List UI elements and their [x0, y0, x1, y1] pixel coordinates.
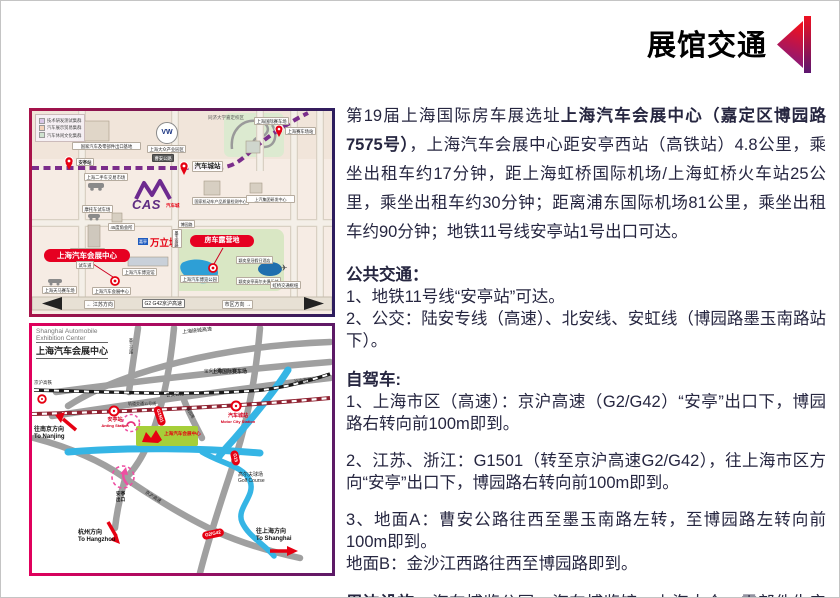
public-transport-section: 公共交通： 1、地铁11号线“安亭站”可达。 2、公交：陆安专线（高速）、北安线…: [346, 264, 826, 352]
left-arrow-glyph: ←: [87, 302, 92, 308]
right-arrow-glyph: →: [246, 302, 251, 308]
label-tongji: 同济大学嘉定校区: [208, 115, 244, 121]
driving-item: 3、地面A：曹安公路往西至墨玉南路左转，至博园路左转向前100m即到。: [346, 509, 826, 553]
cas-logo-subtext: 汽车城: [166, 203, 180, 209]
public-transport-item: 1、地铁11号线“安亭站”可达。: [346, 286, 826, 308]
transport-info: 第19届上海国际房车展选址上海汽车会展中心（嘉定区博园路7575号），上海汽车会…: [346, 102, 826, 598]
airplane-icon: ✈: [280, 263, 288, 274]
label-hongqiao-hub: 虹桥交通枢纽: [270, 281, 301, 289]
label-to-nanjing: 往南京方向To Nanjing: [34, 427, 65, 441]
vw-logo: VW: [156, 122, 178, 144]
driving-section: 自驾车: 1、上海市区（高速）：京沪高速（G2/G42）“安亭”出口下，博园路右…: [346, 369, 826, 575]
label-to-shanghai: 往上海方向To Shanghai: [256, 529, 292, 543]
label-vw-park: 上海大众产业园区: [147, 145, 186, 153]
arrow-bar: [804, 16, 811, 73]
label-to-hangzhou: 杭州方向To Hangzhou: [78, 530, 116, 544]
legend-swatch: [39, 118, 45, 124]
map-title-cn: 上海汽车会展中心: [36, 342, 108, 359]
label-intl-circuit: 上海国际赛车场: [212, 368, 247, 375]
legend-item: 汽车展示贸易集群: [39, 124, 81, 131]
intro-pre: 第19届上海国际房车展选址: [346, 107, 561, 125]
driving-item: 地面B：金沙江西路往西至博园路即到。: [346, 553, 826, 575]
public-transport-heading: 公共交通：: [346, 264, 826, 286]
map-anting-canvas: 技术研发测试集群 汽车展示贸易集群 汽车休闲文化集群 国家汽车及零部件出口基地 …: [32, 111, 332, 314]
label-dir-city: 市区方向 →: [222, 300, 253, 309]
label-expo-center: 上海汽车会展中心: [164, 431, 201, 437]
driving-item: 1、上海市区（高速）：京沪高速（G2/G42）“安亭”出口下，博园路右转向前10…: [346, 391, 826, 435]
label-expo-center-small: 上海汽车会展中心: [92, 287, 131, 295]
label-f1: 上海国际赛车场: [254, 117, 289, 125]
label-golf-course: 高尔夫球场Golf Course: [238, 472, 265, 484]
legend-item: 技术研发测试集群: [39, 117, 81, 124]
label-expo-park: 上海汽车博览公园: [180, 275, 219, 283]
sign-g2-g42: G2 G42京沪高速: [142, 299, 185, 308]
legend-item: 汽车休闲文化集群: [39, 132, 81, 139]
facilities-heading: 周边设施：: [346, 594, 432, 598]
facilities-section: 周边设施：汽车博览公园、汽车博览馆、上海大众、零部件生产商、机动车检测中心、F1…: [346, 592, 826, 598]
label-club45: 45度角会所: [108, 223, 135, 231]
label-qc-center: 国家机动车产品质量检测中心: [192, 197, 249, 205]
title-arrow-icon: [777, 16, 811, 73]
page-title: 展馆交通: [647, 22, 767, 64]
legend-swatch: [39, 132, 45, 138]
station-label-anting: 安亭站Anting Station: [96, 418, 134, 428]
label-anting-exit: 安亭出口: [116, 491, 125, 502]
station-label-motor-city: 汽车城站Motor City Station: [216, 414, 260, 424]
label-tianma-circuit: 上海天马赛车场: [42, 286, 77, 294]
station-ring-motor-city: [232, 402, 241, 411]
map-legend: 技术研发测试集群 汽车展示贸易集群 汽车休闲文化集群: [35, 114, 85, 142]
station-label-circuit: 上海赛车场站: [285, 127, 316, 135]
label-metro11: 轨道交通11号线: [128, 401, 156, 407]
public-transport-item: 2、公交：陆安专线（高速）、北安线、安虹线（博园路墨玉南路站下）。: [346, 308, 826, 352]
intro-paragraph: 第19届上海国际房车展选址上海汽车会展中心（嘉定区博园路7575号），上海汽车会…: [346, 102, 826, 247]
label-export-base: 国家汽车及零部件出口基地: [72, 142, 141, 150]
label-boyuan-road: 博园路: [178, 220, 195, 228]
driving-heading: 自驾车:: [346, 369, 826, 391]
label-moyu-north-road: 墨玉北路: [128, 338, 134, 354]
label-saic-rd: 上汽集团研发中心: [246, 195, 295, 203]
driving-item: 2、江苏、浙江：G1501（转至京沪高速G2/G42），往上海市区方向“安亭”出…: [346, 450, 826, 494]
label-jinghu-hsr: 京沪高铁: [34, 380, 52, 386]
label-moto-track: 摩托车试车场: [82, 205, 113, 213]
map-highway-schematic: Shanghai Automobile Exhibition Center 上海…: [29, 323, 335, 576]
intro-post: ，上海汽车会展中心距安亭西站（高铁站）4.8公里，乘坐出租车约17分钟，距上海虹…: [346, 136, 826, 241]
station-label-motor-city: 汽车城站: [192, 161, 223, 172]
slide: 展馆交通: [0, 0, 840, 598]
station-ring-jinghu-hsr: [38, 395, 46, 403]
label-test-drive: 试车道: [76, 261, 94, 269]
arrow-triangle: [777, 21, 803, 68]
cas-logo-text: CAS: [132, 197, 161, 212]
label-dir-jiangsu: ← 江苏方向: [84, 300, 115, 309]
map-title-en2: Exhibition Center: [36, 335, 108, 342]
map-highway-canvas: Shanghai Automobile Exhibition Center 上海…: [32, 326, 332, 573]
label-moyu-road: 墨玉南路: [172, 229, 182, 248]
wanli-prefix: 嘉亭: [138, 238, 148, 245]
map-title-block: Shanghai Automobile Exhibition Center 上海…: [36, 328, 108, 359]
label-expo-museum: 上海汽车博览馆: [122, 268, 157, 276]
map-anting-pictorial: 技术研发测试集群 汽车展示贸易集群 汽车休闲文化集群 国家汽车及零部件出口基地 …: [29, 108, 335, 317]
station-label-anting: 安亭站: [76, 158, 94, 166]
label-used-car-market: 上海二手车交易市场: [84, 173, 128, 181]
map-title-en1: Shanghai Automobile: [36, 328, 108, 335]
label-hotel: 颖奕皇冠假日酒店: [236, 256, 273, 264]
station-ring-anting: [110, 407, 119, 416]
sign-caoan-road: 曹安公路: [152, 154, 174, 162]
badge-rv-camp: 房车露营地: [190, 235, 254, 247]
legend-swatch: [39, 125, 45, 131]
